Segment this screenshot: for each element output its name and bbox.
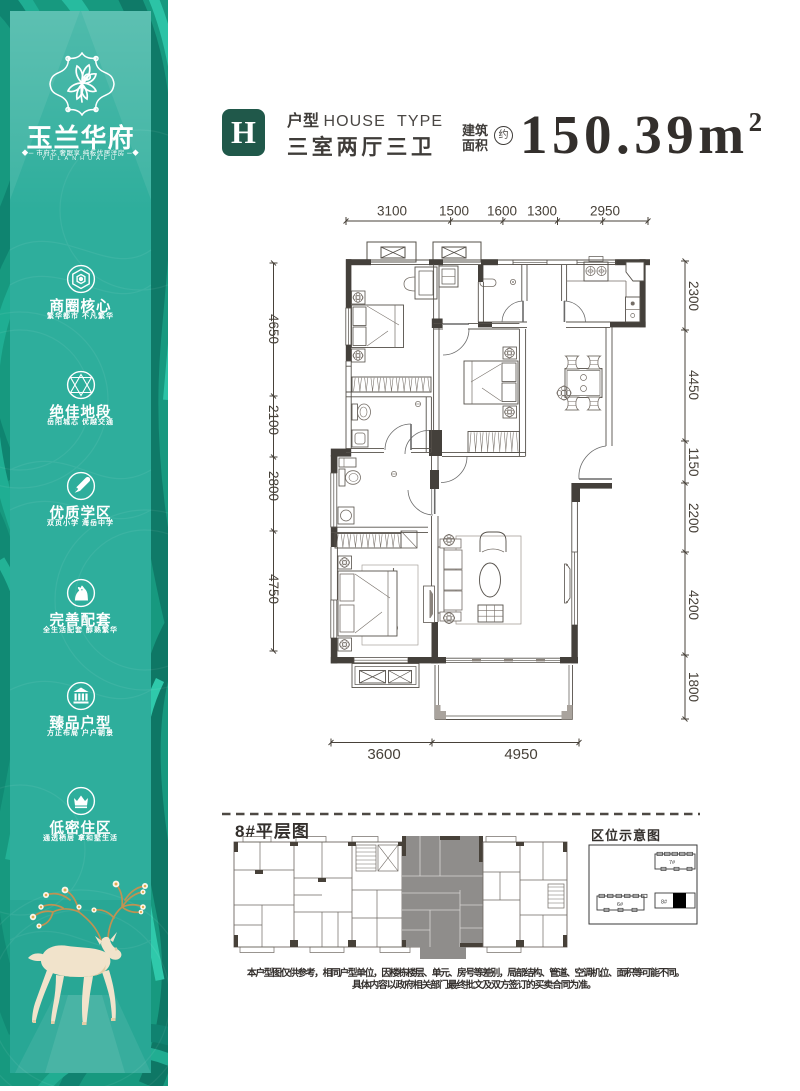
svg-text:4650: 4650 bbox=[266, 314, 281, 344]
svg-text:1800: 1800 bbox=[686, 672, 701, 702]
svg-text:8#: 8# bbox=[661, 900, 668, 906]
svg-text:6#: 6# bbox=[617, 902, 624, 908]
svg-text:1150: 1150 bbox=[686, 447, 701, 476]
svg-text:1600: 1600 bbox=[487, 204, 517, 219]
svg-text:3600: 3600 bbox=[367, 746, 400, 763]
svg-text:7#: 7# bbox=[669, 860, 676, 866]
svg-text:2950: 2950 bbox=[590, 204, 620, 219]
svg-text:2200: 2200 bbox=[686, 503, 701, 533]
svg-text:2300: 2300 bbox=[686, 281, 701, 311]
svg-text:4200: 4200 bbox=[686, 590, 701, 620]
svg-text:2100: 2100 bbox=[266, 405, 281, 435]
svg-text:4450: 4450 bbox=[686, 370, 701, 400]
svg-text:1300: 1300 bbox=[527, 204, 557, 219]
svg-text:1500: 1500 bbox=[439, 204, 469, 219]
svg-text:3100: 3100 bbox=[377, 204, 407, 219]
svg-text:4750: 4750 bbox=[266, 574, 281, 604]
svg-text:2800: 2800 bbox=[266, 471, 281, 501]
svg-text:4950: 4950 bbox=[504, 746, 537, 763]
